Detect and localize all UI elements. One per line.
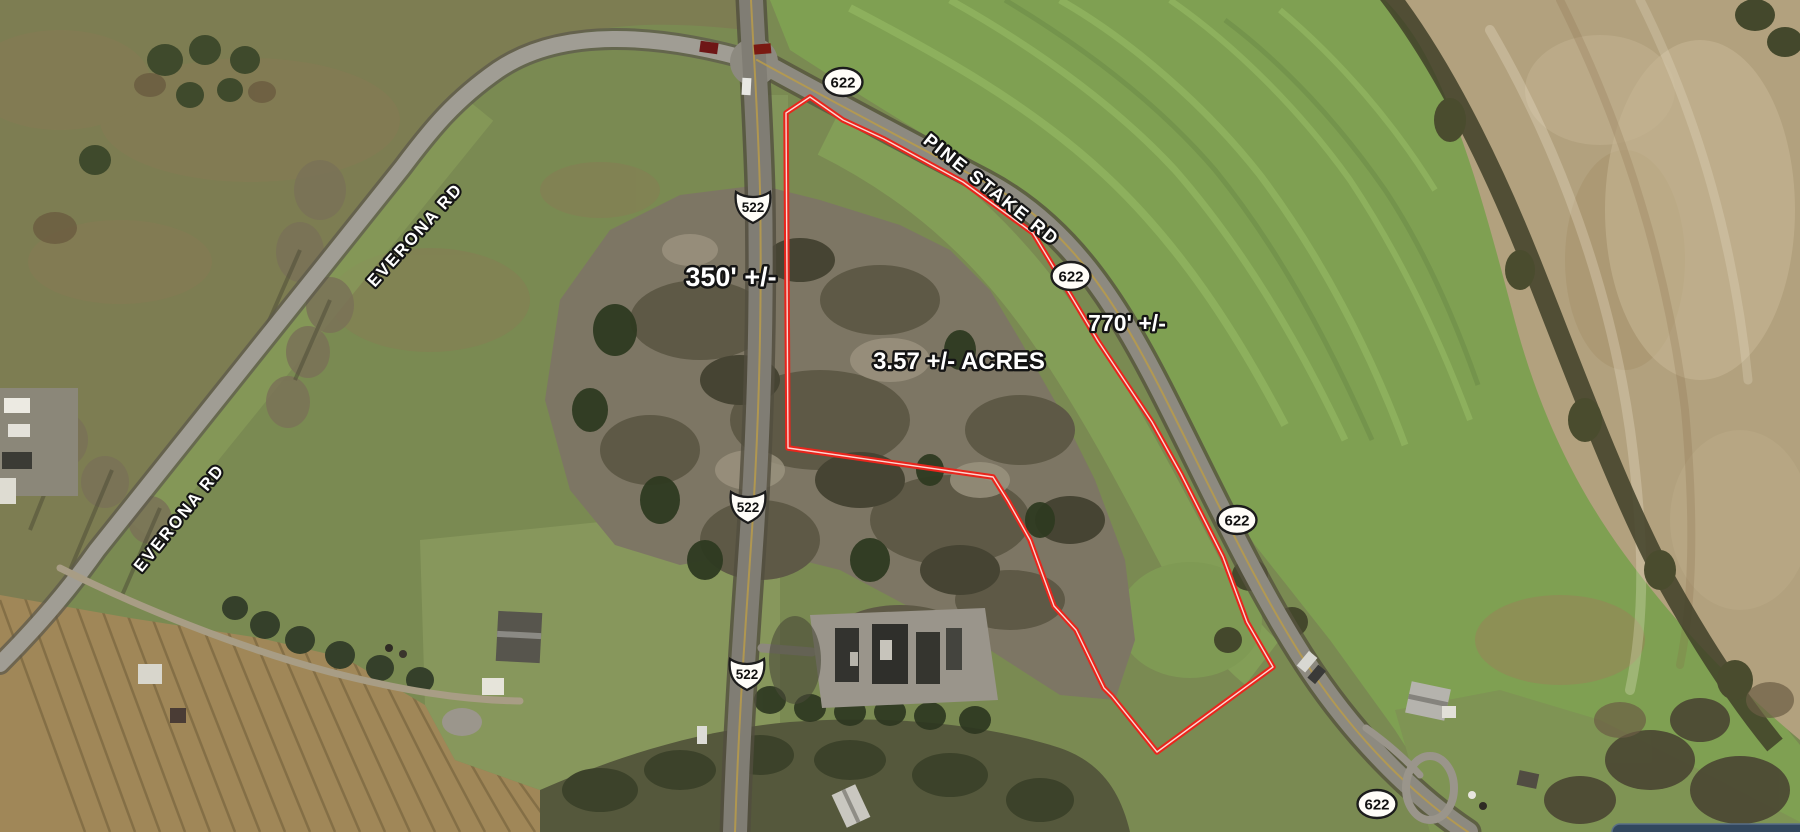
shed-white <box>482 678 504 695</box>
route-shield-622-middle: 622 <box>1218 506 1257 534</box>
driveway-pad <box>442 708 482 736</box>
farmstead-left <box>0 388 78 504</box>
route-shield-622-upper-label: 622 <box>1058 269 1083 286</box>
aerial-map-svg: 622 622 622 622 522 522 522 PINE STAKE R… <box>0 0 1800 832</box>
aerial-map: 622 622 622 622 522 522 522 PINE STAKE R… <box>0 0 1800 832</box>
substation <box>769 608 998 708</box>
shed-west-white <box>138 664 162 684</box>
shed-west-dark <box>170 708 186 723</box>
us-route-shield-522-middle-label: 522 <box>737 500 760 515</box>
frontage-label-east: 770' +/- <box>1088 310 1166 336</box>
route-shield-622-top-label: 622 <box>830 75 855 92</box>
route-shield-622-middle-label: 622 <box>1224 513 1249 530</box>
route-shield-622-bottom: 622 <box>1358 790 1397 818</box>
bottom-right-ui-bar[interactable] <box>1612 824 1800 832</box>
house-bottom-left <box>496 611 543 663</box>
route-shield-622-upper: 622 <box>1052 262 1091 290</box>
frontage-label-west: 350' +/- <box>685 262 776 292</box>
route-shield-622-top: 622 <box>824 68 863 96</box>
us-route-shield-522-top-label: 522 <box>742 200 765 215</box>
us-route-shield-522-bottom-label: 522 <box>736 667 759 682</box>
acreage-label: 3.57 +/- ACRES <box>873 348 1045 375</box>
route-shield-622-bottom-label: 622 <box>1364 797 1389 814</box>
shed-southeast-white <box>1442 706 1456 718</box>
